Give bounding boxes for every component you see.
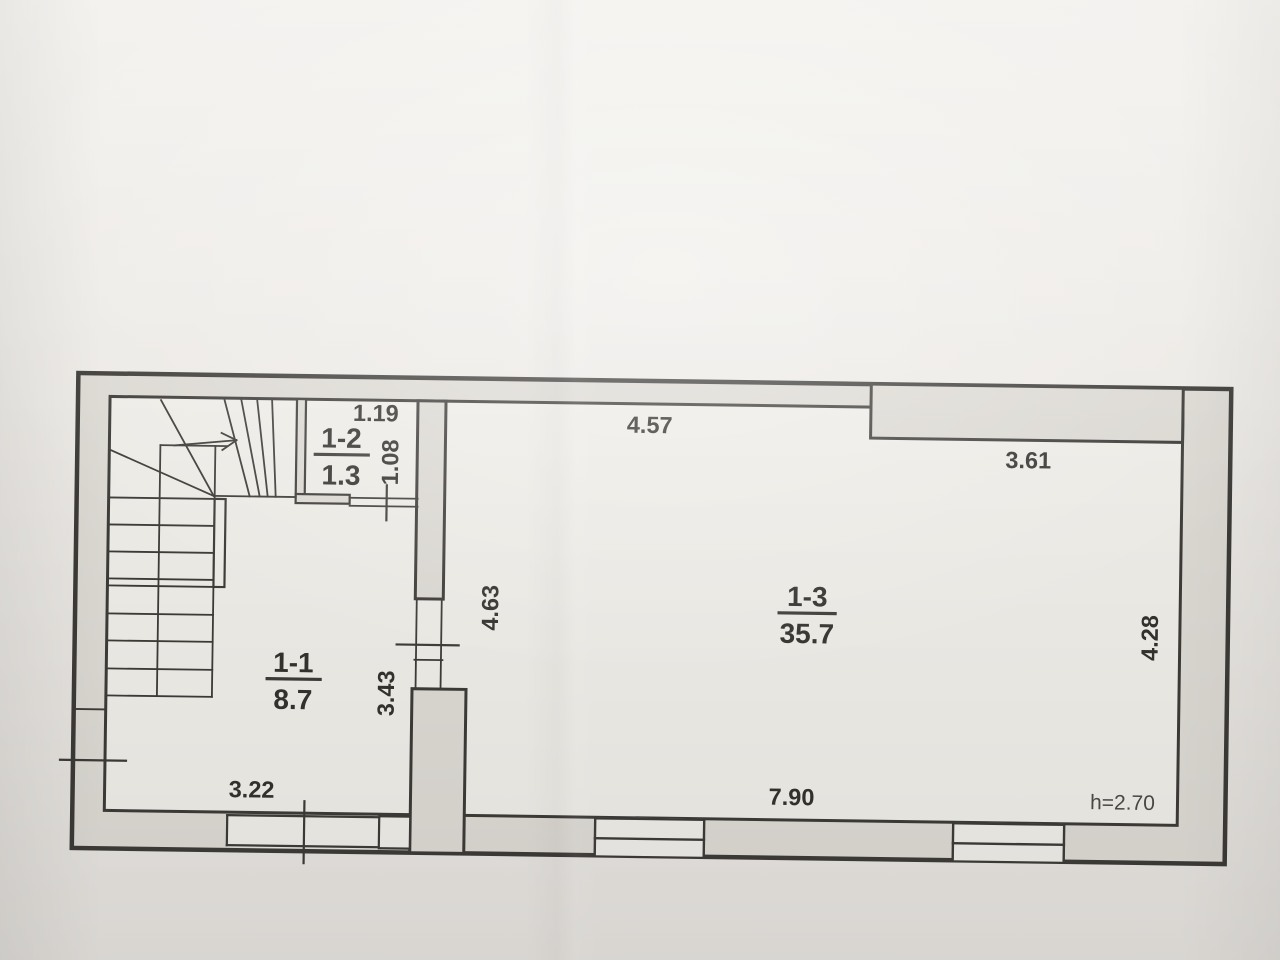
dimension-tick (60, 760, 126, 761)
bottom-door-opening (379, 816, 410, 848)
window-opening (953, 822, 1065, 862)
dim-room13-top-left: 4.57 (627, 412, 673, 439)
dimension-tick (304, 801, 305, 863)
notes-group: h=2.70 (1090, 791, 1155, 815)
scanned-floor-plan-photo: 1-2 1.3 1-1 8.7 1-3 35.7 1.19 4.57 3.61 … (0, 0, 1280, 960)
window-mid-line (953, 843, 1064, 845)
window-opening (595, 817, 705, 857)
dim-room11-width: 3.22 (229, 776, 275, 803)
winder-base-line (215, 496, 296, 497)
stair-stub-group (213, 499, 225, 587)
window-mid-line (595, 838, 704, 840)
room-number-underline (315, 454, 368, 455)
partition-wall-upper (415, 401, 446, 599)
room-1-2-area: 1.3 (321, 459, 360, 491)
ceiling-height-note: h=2.70 (1090, 791, 1155, 815)
room-1-2-number: 1-2 (321, 422, 362, 454)
partition-wall-lower (410, 689, 466, 854)
dim-room11-height: 3.43 (373, 670, 400, 716)
dim-room12-height: 1.08 (377, 439, 404, 485)
window-jamb (595, 818, 596, 855)
window-line (595, 818, 704, 820)
window-jamb (953, 823, 954, 860)
room-1-2-left-wall (296, 399, 306, 494)
dim-room13-left-height: 4.63 (477, 585, 504, 631)
stair-stub-wall (213, 499, 225, 587)
plan-rotated-group: 1-2 1.3 1-1 8.7 1-3 35.7 1.19 4.57 3.61 … (59, 373, 1232, 876)
threshold-line (350, 498, 418, 499)
dim-room12-width: 1.19 (353, 400, 399, 427)
room-1-1-area: 8.7 (273, 684, 312, 716)
stair-landing-line (160, 445, 227, 446)
room-number-underline (779, 613, 835, 614)
room-1-2-bottom-wall (296, 494, 350, 504)
room-1-3-number: 1-3 (787, 581, 828, 613)
window-jamb (704, 820, 705, 857)
dim-room13-right-height: 4.28 (1136, 615, 1163, 661)
room-1-1-number: 1-1 (273, 647, 314, 679)
dim-room13-top-right: 3.61 (1005, 447, 1051, 474)
room-number-underline (267, 679, 320, 680)
dimension-tick (397, 644, 459, 645)
window-jamb (1064, 825, 1065, 862)
top-right-deep-wall (871, 384, 1184, 442)
floor-plan-drawing: 1-2 1.3 1-1 8.7 1-3 35.7 1.19 4.57 3.61 … (0, 0, 1280, 960)
window-line (953, 823, 1064, 825)
room-1-3-area: 35.7 (779, 618, 834, 650)
dim-room13-bottom-width: 7.90 (768, 784, 814, 811)
threshold-line (350, 506, 418, 507)
